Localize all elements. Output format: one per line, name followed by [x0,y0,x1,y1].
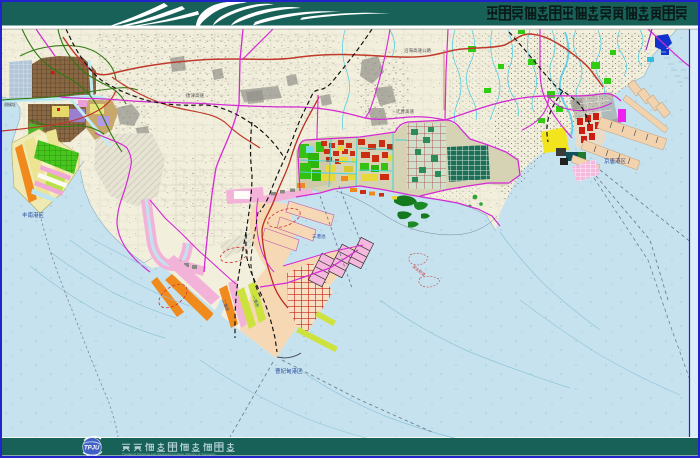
svg-text:迁曹高速: 迁曹高速 [396,108,414,115]
svg-text:测候址: 测候址 [4,101,16,107]
svg-text:沿海高速公路: 沿海高速公路 [404,47,431,54]
svg-text:丰南港区: 丰南港区 [22,211,45,219]
svg-text:京唐港区: 京唐港区 [604,157,627,165]
svg-text:三港池: 三港池 [312,233,326,240]
svg-text:唐津高速: 唐津高速 [186,92,204,99]
svg-text:曹妃甸港区: 曹妃甸港区 [275,367,303,375]
svg-text:TPJU: TPJU [84,446,100,452]
svg-text:Transport Planning and Researc: Transport Planning and Research Institut… [122,452,216,456]
